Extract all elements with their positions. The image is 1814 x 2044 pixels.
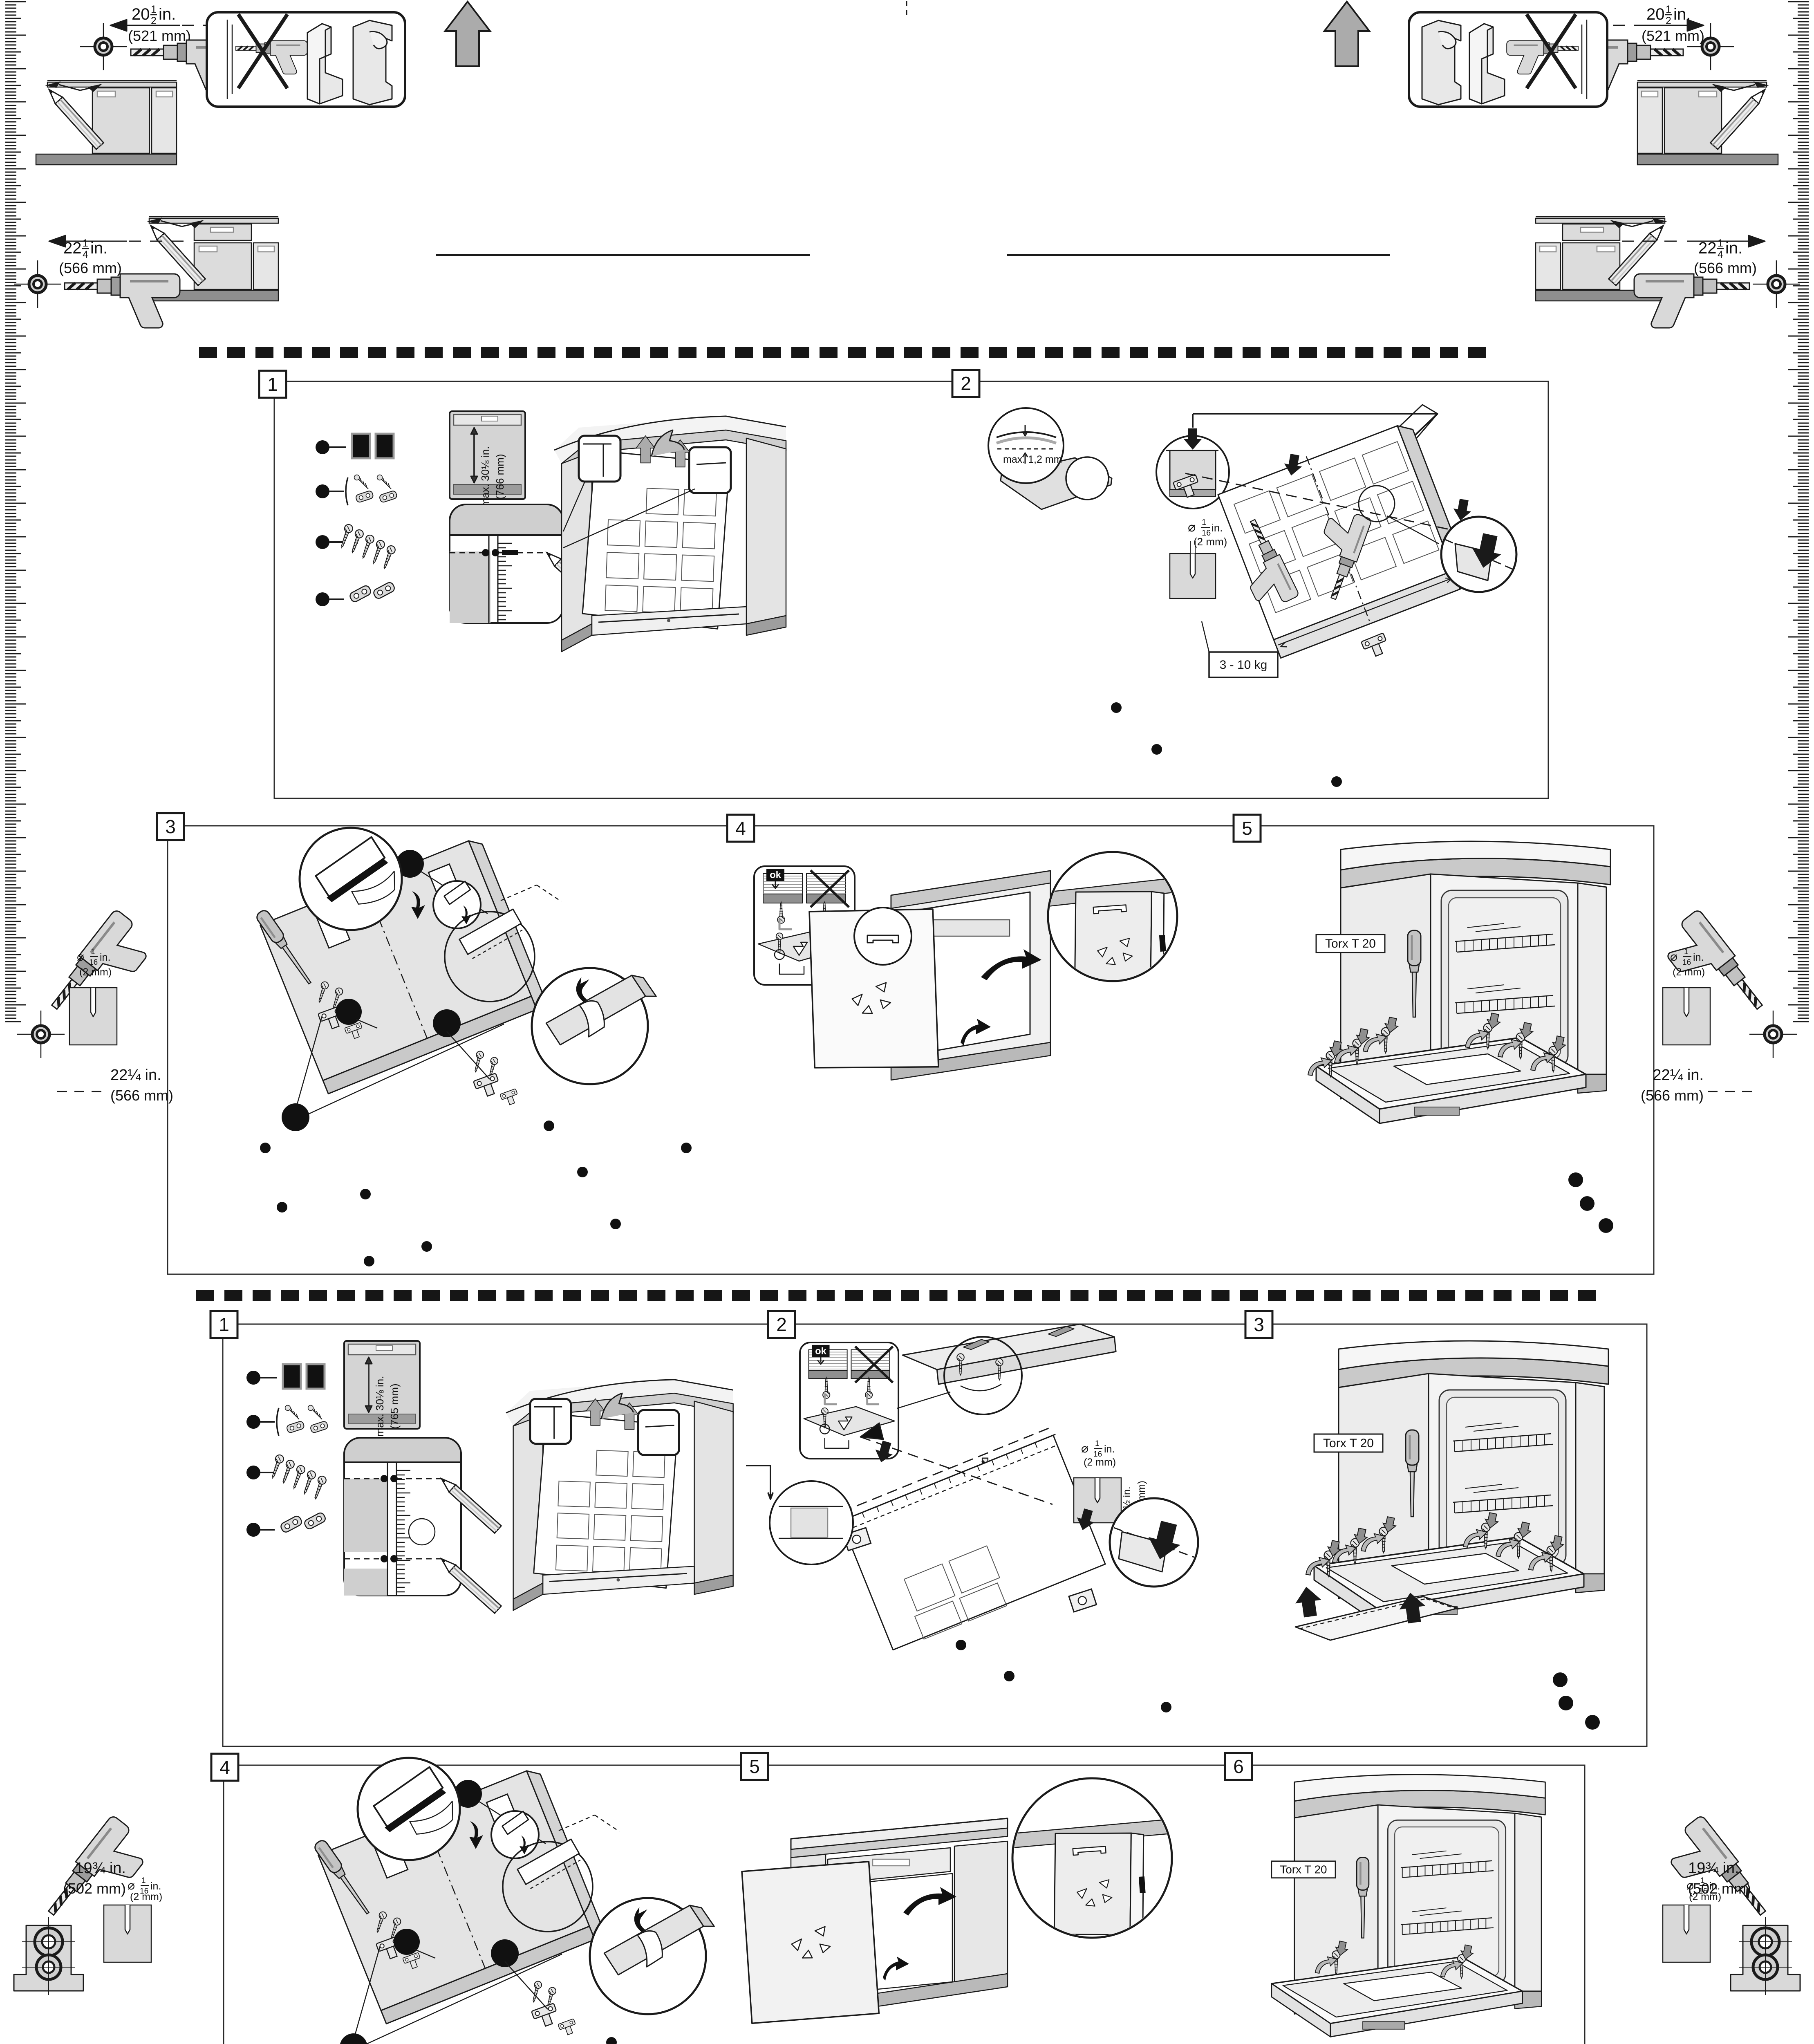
svg-text:(765 mm): (765 mm) [388,1383,401,1429]
svg-text:1: 1 [83,238,88,249]
svg-text:⌀: ⌀ [77,950,84,964]
svg-text:22¼ in.: 22¼ in. [110,1067,161,1084]
svg-text:(2 mm): (2 mm) [1194,536,1227,548]
svg-text:20: 20 [132,5,150,23]
svg-text:(521 mm): (521 mm) [1642,27,1704,44]
svg-text:1: 1 [1684,948,1689,956]
svg-text:max. 30⅛ in.: max. 30⅛ in. [374,1376,386,1437]
svg-text:in.: in. [1725,239,1742,257]
svg-text:⌀: ⌀ [1670,950,1677,964]
svg-text:1: 1 [141,1876,146,1885]
svg-text:in.: in. [1104,1443,1115,1455]
svg-text:3 - 10 kg: 3 - 10 kg [1220,658,1268,672]
svg-text:⌀: ⌀ [128,1879,135,1892]
svg-text:1: 1 [1095,1439,1100,1448]
svg-text:2: 2 [961,373,971,394]
svg-text:max. 30⅛ in.: max. 30⅛ in. [479,446,491,507]
svg-text:16: 16 [89,958,98,967]
svg-text:1: 1 [1718,238,1723,249]
svg-text:1: 1 [151,4,157,15]
svg-text:22: 22 [63,239,82,257]
svg-text:in.: in. [90,239,107,257]
svg-text:in.: in. [150,1880,161,1892]
svg-text:max. 1,2 mm: max. 1,2 mm [1003,454,1062,465]
svg-text:in.: in. [159,5,176,23]
svg-text:2: 2 [776,1314,787,1335]
svg-text:1: 1 [1202,518,1206,527]
svg-text:(566 mm): (566 mm) [1694,260,1757,276]
svg-text:⌀: ⌀ [1188,520,1196,534]
svg-text:1: 1 [219,1314,229,1335]
svg-text:5: 5 [1242,818,1252,839]
svg-text:(566 mm): (566 mm) [1641,1087,1704,1104]
svg-text:Torx T 20: Torx T 20 [1325,937,1376,950]
svg-text:22¼ in.: 22¼ in. [1653,1067,1704,1084]
svg-text:Torx T 20: Torx T 20 [1280,1863,1327,1876]
svg-text:5: 5 [749,1756,760,1777]
svg-text:(2 mm): (2 mm) [79,966,112,978]
svg-text:(566 mm): (566 mm) [59,260,122,276]
svg-text:in.: in. [1693,952,1704,963]
svg-text:(502 mm): (502 mm) [1688,1880,1751,1897]
svg-text:⌀: ⌀ [1081,1442,1088,1455]
svg-text:19¾ in.: 19¾ in. [75,1860,126,1877]
svg-text:4: 4 [83,249,88,260]
svg-text:22: 22 [1698,239,1717,257]
svg-text:(566 mm): (566 mm) [110,1087,173,1104]
svg-text:20: 20 [1646,5,1665,23]
svg-text:16: 16 [1682,958,1691,967]
svg-text:19¾ in.: 19¾ in. [1688,1860,1739,1877]
svg-text:4: 4 [219,1757,230,1778]
svg-text:4: 4 [1718,249,1723,260]
svg-text:(2 mm): (2 mm) [130,1891,162,1903]
svg-text:1: 1 [267,374,278,395]
svg-text:3: 3 [1254,1314,1264,1335]
svg-text:ok: ok [770,870,782,881]
svg-text:(2 mm): (2 mm) [1084,1457,1116,1468]
svg-text:1: 1 [1666,4,1671,15]
svg-text:Torx T 20: Torx T 20 [1323,1437,1374,1450]
svg-text:ok: ok [815,1345,826,1356]
svg-text:(766 mm): (766 mm) [494,454,506,499]
svg-text:1: 1 [91,948,95,956]
svg-text:(521 mm): (521 mm) [128,27,191,44]
svg-text:4: 4 [735,818,746,839]
svg-text:(2 mm): (2 mm) [1673,966,1705,978]
svg-text:6: 6 [1233,1756,1244,1777]
svg-text:in.: in. [100,952,110,963]
svg-text:(502 mm): (502 mm) [63,1880,126,1897]
svg-text:3: 3 [165,816,176,837]
svg-text:in.: in. [1212,522,1223,534]
